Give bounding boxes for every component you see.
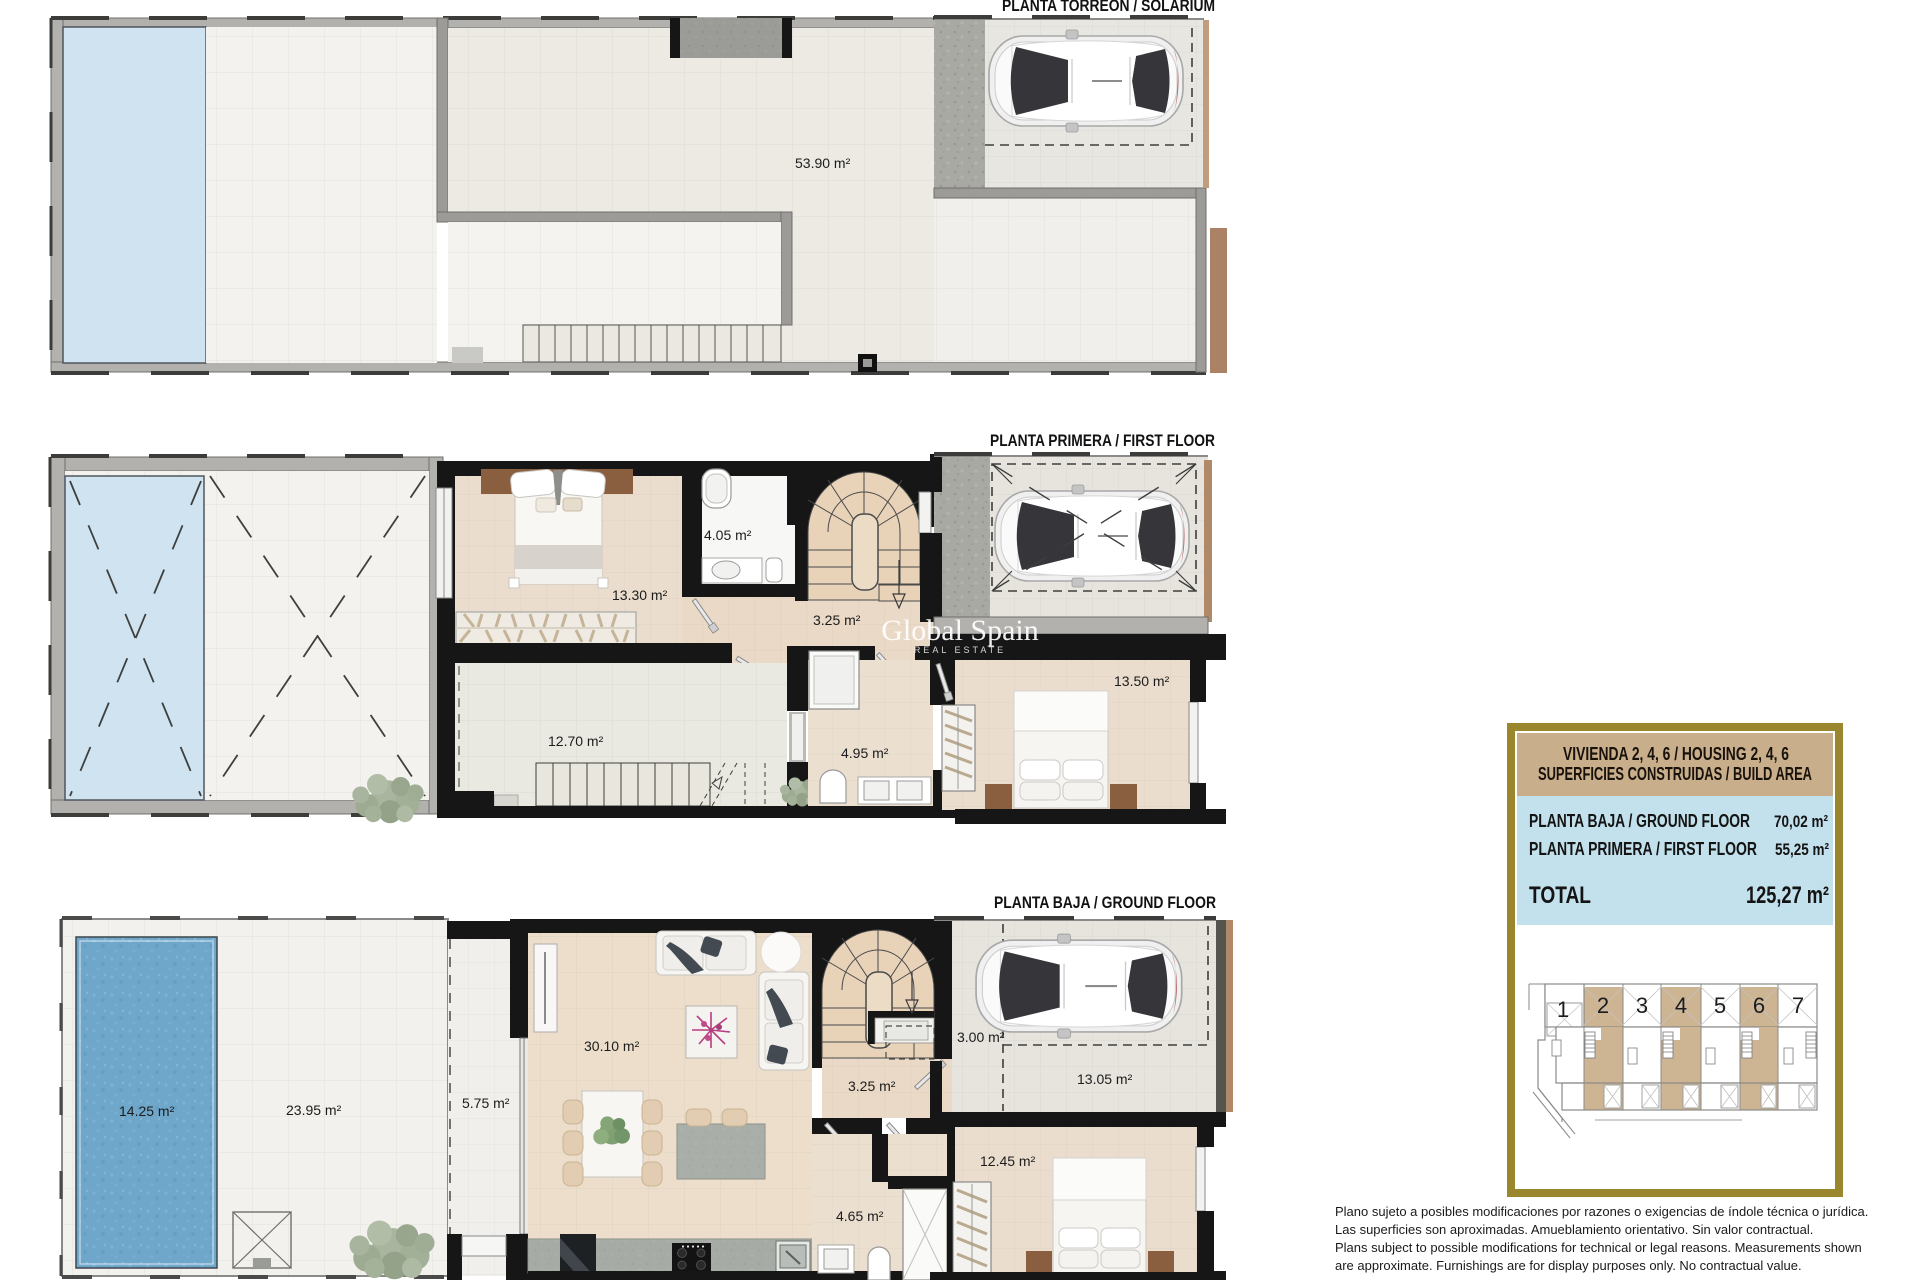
svg-text:TOTAL: TOTAL	[1529, 882, 1591, 909]
svg-text:12.70 m²: 12.70 m²	[548, 733, 604, 749]
svg-text:SUPERFICIES CONSTRUIDAS / BUIL: SUPERFICIES CONSTRUIDAS / BUILD AREA	[1538, 764, 1812, 784]
svg-text:1: 1	[1557, 997, 1569, 1022]
svg-text:3: 3	[1636, 993, 1648, 1018]
svg-text:PLANTA PRIMERA / FIRST FLOOR: PLANTA PRIMERA / FIRST FLOOR	[1529, 839, 1757, 859]
svg-text:REAL ESTATE: REAL ESTATE	[914, 645, 1006, 655]
svg-text:PLANTA TORREÓN / SOLARIUM: PLANTA TORREÓN / SOLARIUM	[1002, 0, 1215, 15]
svg-text:3.00 m²: 3.00 m²	[957, 1029, 1005, 1045]
svg-text:4.65 m²: 4.65 m²	[836, 1208, 884, 1224]
svg-text:2: 2	[1597, 993, 1609, 1018]
svg-text:3.25 m²: 3.25 m²	[813, 612, 861, 628]
svg-text:4: 4	[1675, 993, 1687, 1018]
svg-text:70,02 m²: 70,02 m²	[1774, 812, 1828, 831]
svg-text:5: 5	[1714, 993, 1726, 1018]
svg-text:Las superficies son aproximada: Las superficies son aproximadas. Amuebla…	[1335, 1222, 1813, 1237]
svg-text:PLANTA BAJA / GROUND FLOOR: PLANTA BAJA / GROUND FLOOR	[1529, 811, 1750, 831]
svg-text:PLANTA BAJA / GROUND FLOOR: PLANTA BAJA / GROUND FLOOR	[994, 893, 1216, 912]
svg-text:Plans subject to possible modi: Plans subject to possible modifications …	[1335, 1240, 1862, 1255]
svg-text:13.30 m²: 13.30 m²	[612, 587, 668, 603]
svg-text:13.50 m²: 13.50 m²	[1114, 673, 1170, 689]
svg-text:4.05 m²: 4.05 m²	[704, 527, 752, 543]
svg-text:53.90 m²: 53.90 m²	[795, 155, 851, 171]
svg-text:4.95 m²: 4.95 m²	[841, 745, 889, 761]
svg-text:6: 6	[1753, 993, 1765, 1018]
svg-text:12.45 m²: 12.45 m²	[980, 1153, 1036, 1169]
svg-text:are approximate. Furnishings a: are approximate. Furnishings are for dis…	[1335, 1258, 1802, 1273]
svg-text:7: 7	[1792, 993, 1804, 1018]
svg-text:23.95 m²: 23.95 m²	[286, 1102, 342, 1118]
svg-text:Global Spain: Global Spain	[881, 614, 1039, 647]
svg-text:5.75 m²: 5.75 m²	[462, 1095, 510, 1111]
svg-text:VIVIENDA 2, 4, 6 / HOUSING 2,: VIVIENDA 2, 4, 6 / HOUSING 2, 4, 6	[1563, 744, 1789, 764]
svg-text:3.25 m²: 3.25 m²	[848, 1078, 896, 1094]
svg-text:30.10 m²: 30.10 m²	[584, 1038, 640, 1054]
svg-text:55,25 m²: 55,25 m²	[1775, 840, 1829, 859]
svg-text:13.05 m²: 13.05 m²	[1077, 1071, 1133, 1087]
svg-text:125,27 m²: 125,27 m²	[1746, 882, 1829, 909]
svg-text:Plano sujeto a posibles modifi: Plano sujeto a posibles modificaciones p…	[1335, 1204, 1868, 1219]
svg-text:14.25 m²: 14.25 m²	[119, 1103, 175, 1119]
svg-text:PLANTA PRIMERA / FIRST FLOOR: PLANTA PRIMERA / FIRST FLOOR	[990, 431, 1215, 450]
